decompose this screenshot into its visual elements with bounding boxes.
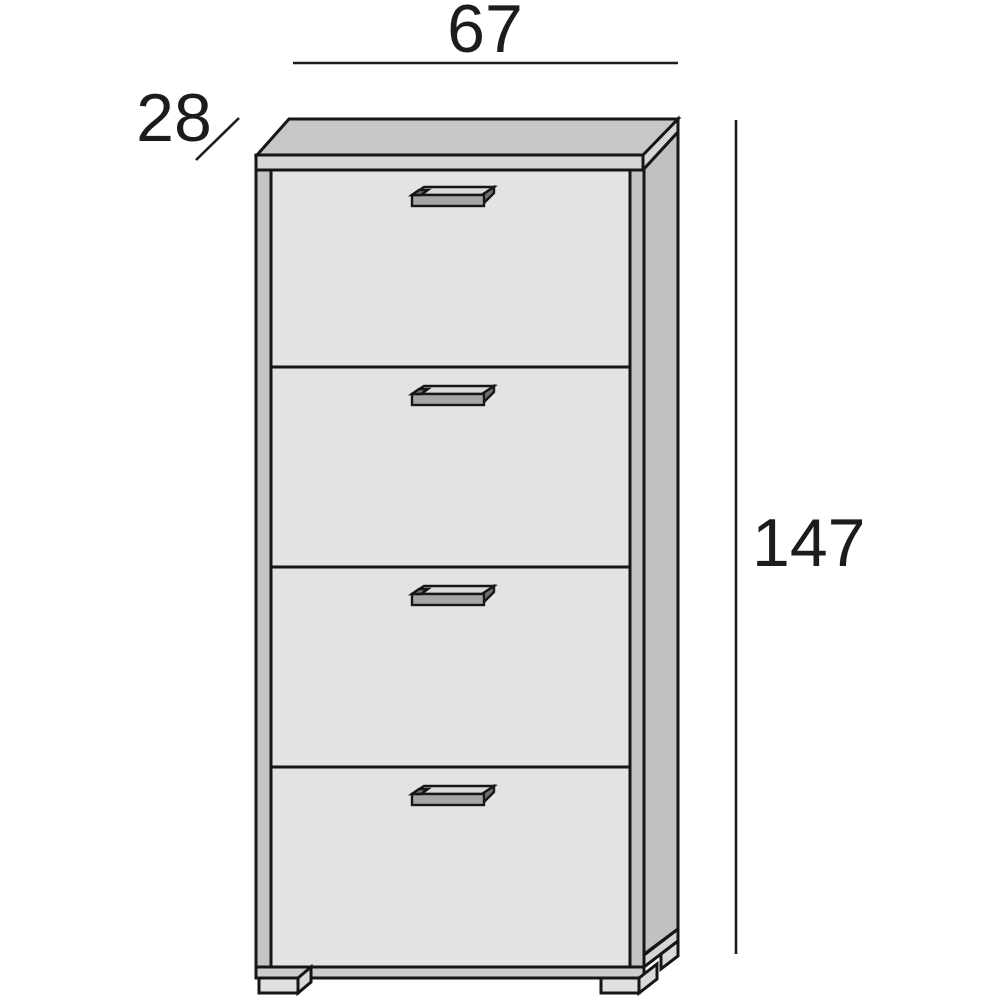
foot-front-left	[259, 978, 298, 993]
cabinet-right-stile	[630, 170, 644, 967]
flap-handle-1	[412, 187, 494, 206]
cabinet-top-face	[257, 119, 678, 155]
cabinet-top-front-edge	[256, 155, 643, 170]
flap-handle-4	[412, 786, 494, 805]
depth-dimension-label: 28	[136, 80, 212, 156]
flap-handle-2	[412, 386, 494, 405]
height-dimension-label: 147	[752, 505, 865, 581]
cabinet	[256, 119, 678, 993]
flap-handle-3	[412, 586, 494, 605]
foot-front-right	[601, 978, 639, 993]
cabinet-right-side-panel	[643, 132, 678, 955]
base-rail-front	[256, 967, 644, 978]
shoe-cabinet-drawing: 67 28 147	[0, 0, 1000, 1000]
dimension-diagram: 67 28 147	[0, 0, 1000, 1000]
cabinet-left-stile	[256, 170, 271, 967]
width-dimension-label: 67	[447, 0, 523, 67]
